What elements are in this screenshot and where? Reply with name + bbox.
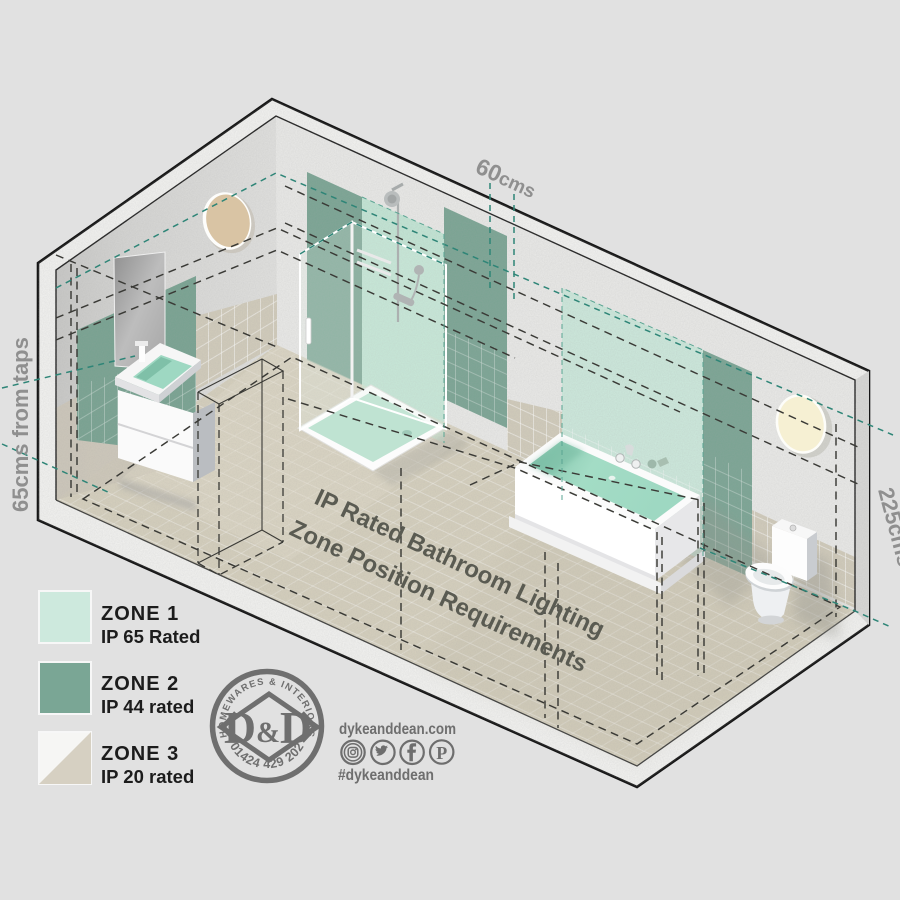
svg-text:#dykeanddean: #dykeanddean: [338, 767, 434, 784]
svg-text:ZONE 3: ZONE 3: [101, 743, 179, 765]
svg-text:65cms from taps: 65cms from taps: [8, 337, 33, 512]
svg-text:ZONE 1: ZONE 1: [101, 603, 179, 625]
svg-text:IP 44 rated: IP 44 rated: [101, 696, 194, 717]
svg-text:ZONE 2: ZONE 2: [101, 673, 179, 695]
svg-text:IP 20 rated: IP 20 rated: [101, 766, 194, 787]
svg-text:IP 65 Rated: IP 65 Rated: [101, 626, 200, 647]
svg-text:dykeanddean.com: dykeanddean.com: [339, 721, 456, 738]
svg-text:P: P: [436, 743, 447, 763]
